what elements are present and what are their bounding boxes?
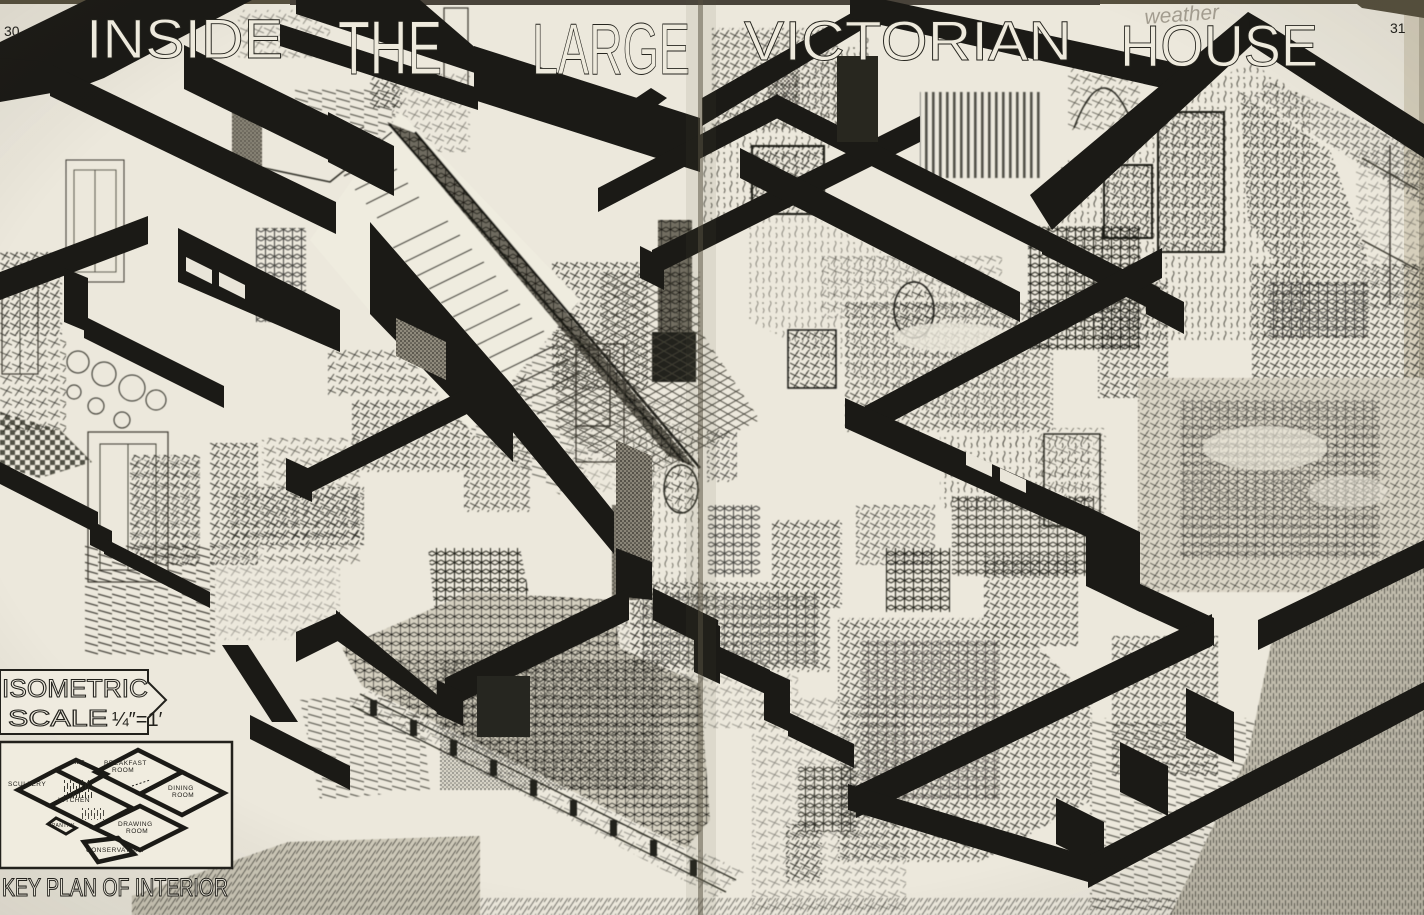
- svg-text:ROOM: ROOM: [126, 828, 148, 835]
- svg-text:CONSERVATORY: CONSERVATORY: [86, 847, 145, 854]
- svg-text:ROOM: ROOM: [112, 767, 134, 774]
- svg-text:SCULLERY: SCULLERY: [8, 781, 46, 788]
- svg-text:DINING: DINING: [168, 785, 194, 792]
- svg-text:INSIDE: INSIDE: [86, 7, 283, 70]
- svg-text:KITCHEN: KITCHEN: [58, 797, 90, 804]
- svg-text:ROOM: ROOM: [172, 792, 194, 799]
- svg-text:KEY PLAN OF INTERIOR: KEY PLAN OF INTERIOR: [2, 874, 228, 902]
- svg-text:BREAKFAST: BREAKFAST: [104, 760, 147, 767]
- svg-text:THE: THE: [338, 6, 442, 91]
- svg-text:PANTRY: PANTRY: [52, 823, 75, 829]
- svg-text:ISOMETRIC: ISOMETRIC: [2, 675, 148, 703]
- svg-text:VICTORIAN: VICTORIAN: [744, 9, 1072, 72]
- svg-text:¼″=1′: ¼″=1′: [112, 709, 163, 731]
- svg-text:LARGE: LARGE: [532, 10, 690, 90]
- svg-text:SCALE: SCALE: [8, 705, 108, 731]
- svg-text:DRAWING: DRAWING: [118, 821, 153, 828]
- svg-text:W.C.: W.C.: [74, 760, 87, 766]
- svg-text:30: 30: [4, 23, 20, 39]
- svg-text:31: 31: [1390, 20, 1406, 36]
